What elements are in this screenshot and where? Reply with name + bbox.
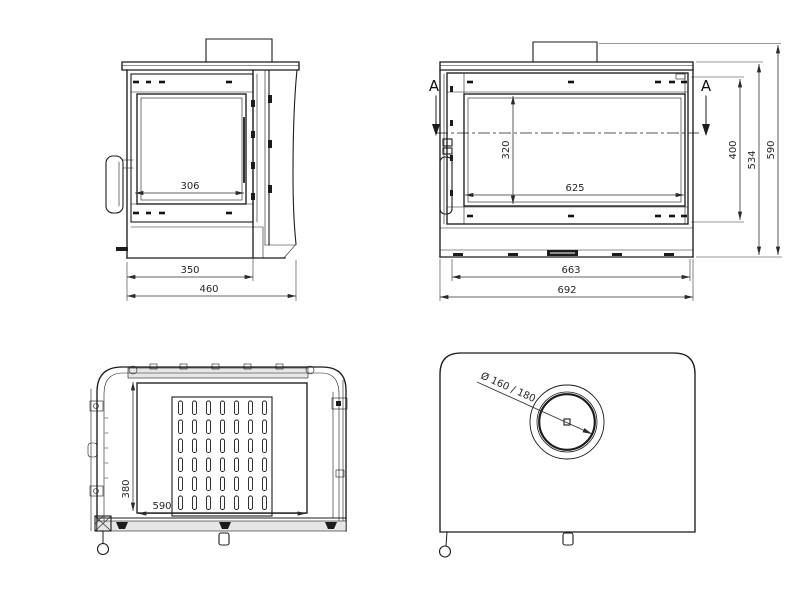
section-marker-left-label: A <box>429 77 440 95</box>
combustion-chamber <box>137 383 307 513</box>
grate-slots <box>179 401 267 510</box>
door-handle <box>106 156 133 213</box>
section-marker-right: A <box>701 77 712 136</box>
stove-technical-drawing: 306 350 460 <box>0 0 800 600</box>
left-foot <box>116 247 128 251</box>
flue-dim-leader <box>477 382 592 434</box>
base-pedestal <box>116 227 285 258</box>
section-arrow-right <box>702 124 710 136</box>
section-arrow-left <box>432 124 440 136</box>
front-rail <box>95 516 346 531</box>
dim-firebox-height-label: 400 <box>728 140 739 159</box>
section-marker-left: A <box>429 77 440 136</box>
body-outline <box>97 367 346 531</box>
dim-body-depth-label: 350 <box>180 265 199 276</box>
top-plate <box>122 62 299 70</box>
top-view-exterior: Ø 160 / 180 <box>440 353 696 557</box>
dim-flue-diameter-label: Ø 160 / 180 <box>479 370 538 405</box>
top-plate <box>440 62 693 70</box>
door-rail <box>128 364 314 378</box>
flue-outlet <box>530 385 604 459</box>
dim-glass-height-label: 320 <box>501 140 512 159</box>
grate <box>172 397 272 516</box>
damper-tab <box>219 533 229 545</box>
control-knob <box>98 531 109 555</box>
dim-overall-height-label: 590 <box>766 140 777 159</box>
dim-chamber-width-label: 590 <box>152 501 171 512</box>
base <box>440 228 693 257</box>
top-view-interior: 380 590 <box>88 364 347 555</box>
dim-glass-width-label: 306 <box>180 181 199 192</box>
damper-tab <box>563 533 573 545</box>
dim-overall-depth-label: 460 <box>199 284 218 295</box>
flue-stub <box>206 39 272 62</box>
dim-inner-width-label: 663 <box>561 265 580 276</box>
dim-glass-width-label: 625 <box>565 183 584 194</box>
door-handle <box>440 157 452 214</box>
dim-overall-width-label: 692 <box>557 285 576 296</box>
side-view: 306 350 460 <box>106 39 299 301</box>
flue-stub <box>533 42 597 62</box>
control-knob <box>440 532 451 557</box>
section-marker-right-label: A <box>701 77 712 95</box>
dim-body-height-label: 534 <box>747 150 758 169</box>
technical-drawing-sheet: 306 350 460 <box>0 0 800 600</box>
front-view: A A 320 625 400 534 590 663 692 <box>429 42 782 301</box>
dim-chamber-depth-label: 380 <box>121 479 132 498</box>
